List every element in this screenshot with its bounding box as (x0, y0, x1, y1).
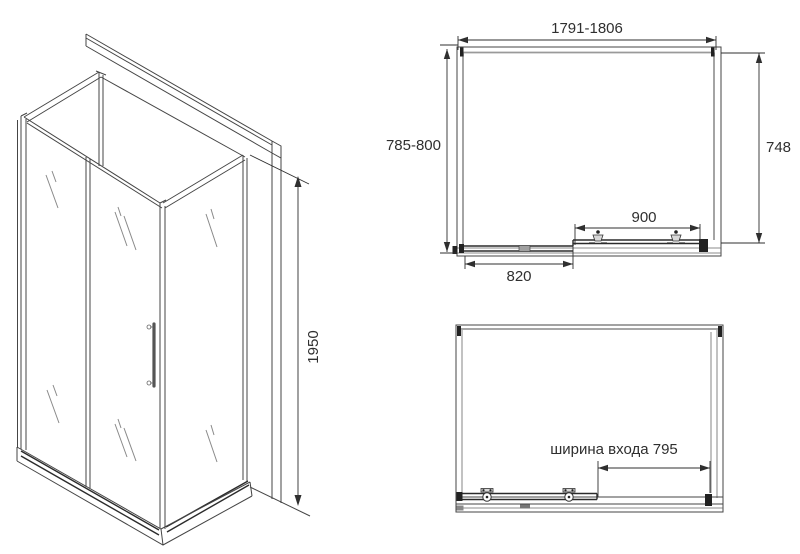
plan-panel-clamp (519, 246, 530, 252)
drawing-canvas: 1950 1791-1806 (0, 0, 800, 554)
front-view: ширина входа 795 (456, 325, 723, 512)
front-posts (462, 330, 717, 498)
front-outline (456, 325, 723, 512)
front-post-cap-right (718, 326, 722, 337)
dimension-overall-depth: 785-800 (386, 45, 458, 253)
sliding-door-label: 900 (631, 209, 656, 226)
door-handle (147, 324, 154, 386)
height-label: 1950 (305, 330, 322, 363)
front-post-cap-left (457, 326, 461, 336)
dimension-overall-width: 1791-1806 (458, 20, 716, 50)
fixed-panel-label: 820 (506, 268, 531, 285)
plan-bar-cap-left (459, 244, 464, 253)
overall-width-label: 1791-1806 (551, 20, 623, 37)
front-corner-bracket-right (705, 494, 712, 506)
isometric-view: 1950 (17, 34, 322, 545)
entrance-width-label: ширина входа 795 (550, 441, 678, 458)
front-track-foot-left (457, 506, 464, 511)
bottom-rails (21, 451, 249, 535)
plan-view: 1791-1806 785-800 748 900 820 (386, 20, 791, 285)
back-panel-outline (86, 34, 281, 503)
wall-profile-top-right (711, 48, 715, 57)
front-track (456, 497, 723, 504)
plan-corner-bracket-right (699, 239, 708, 252)
technical-drawing-page: 1950 1791-1806 (0, 0, 800, 554)
plan-glass-panels (463, 53, 714, 247)
dimension-side-glass: 748 (721, 53, 791, 243)
plan-fixed-panel-bar (461, 246, 573, 251)
wall-profile-top-left (460, 48, 464, 57)
plan-outline (457, 47, 721, 256)
plan-slider-bar (573, 240, 707, 246)
overall-depth-label: 785-800 (386, 137, 441, 154)
shower-tray (17, 447, 310, 545)
side-glass-label: 748 (766, 139, 791, 156)
front-track-clamp (520, 505, 530, 509)
dimension-height: 1950 (250, 155, 322, 506)
glass-reflection-marks (46, 171, 217, 462)
front-door-cap-left (457, 492, 463, 501)
enclosure-frame-lines (18, 71, 248, 529)
